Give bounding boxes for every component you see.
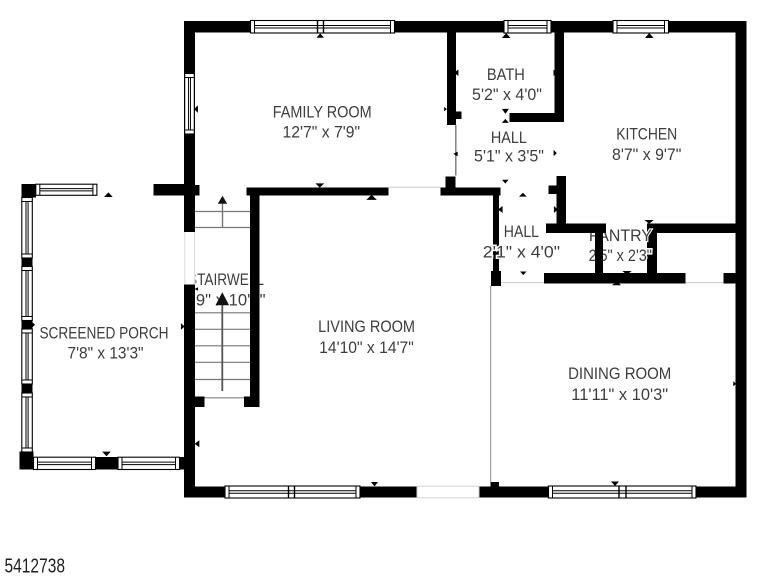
svg-text:SCREENED PORCH: SCREENED PORCH [39, 325, 168, 343]
svg-text:HALL: HALL [504, 223, 539, 241]
svg-text:11'11" x 10'3": 11'11" x 10'3" [571, 386, 668, 404]
svg-text:5'2" x 4'0": 5'2" x 4'0" [472, 86, 542, 104]
svg-text:FAMILY ROOM: FAMILY ROOM [273, 104, 372, 122]
svg-text:14'10" x 14'7": 14'10" x 14'7" [319, 339, 414, 357]
svg-text:5412738: 5412738 [5, 555, 66, 576]
svg-text:BATH: BATH [487, 66, 525, 84]
svg-text:HALL: HALL [491, 129, 527, 147]
svg-text:8'7" x 9'7": 8'7" x 9'7" [612, 146, 682, 164]
svg-text:DINING ROOM: DINING ROOM [568, 365, 671, 383]
svg-text:5'1" x 3'5": 5'1" x 3'5" [474, 147, 544, 165]
svg-text:LIVING ROOM: LIVING ROOM [318, 318, 415, 336]
svg-text:7'8" x 13'3": 7'8" x 13'3" [68, 345, 144, 363]
svg-text:12'7" x 7'9": 12'7" x 7'9" [283, 124, 361, 142]
svg-text:KITCHEN: KITCHEN [616, 126, 677, 144]
svg-text:2'1" x 4'0": 2'1" x 4'0" [483, 244, 561, 262]
